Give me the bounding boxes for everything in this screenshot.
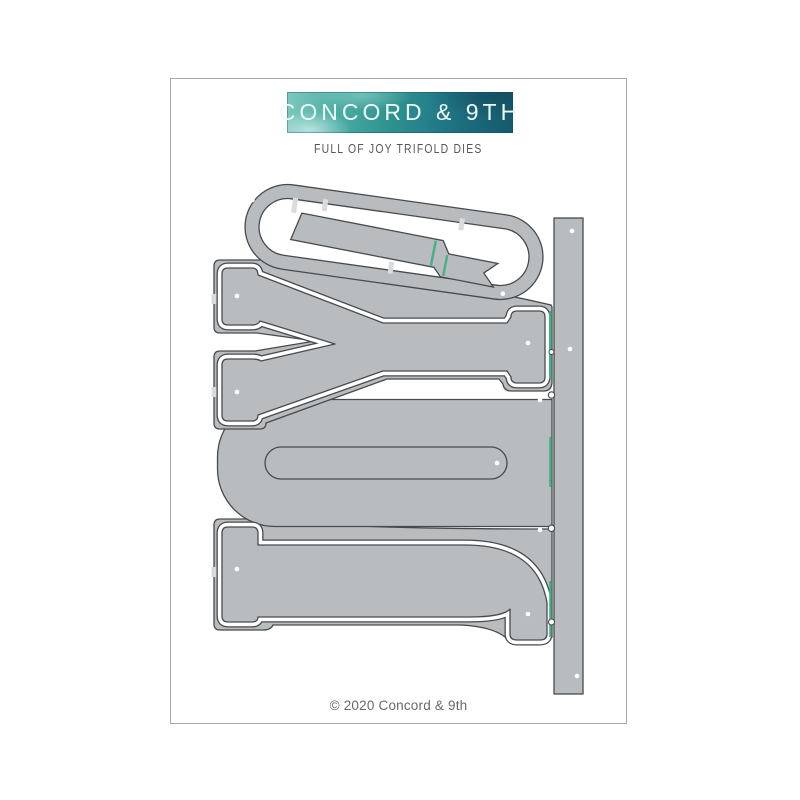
pin-hole xyxy=(235,294,240,299)
edge-notch xyxy=(548,392,554,398)
edge-notch xyxy=(549,619,555,625)
die-spine-strip xyxy=(554,218,583,694)
connector-tab xyxy=(212,294,217,304)
score-line xyxy=(549,581,551,637)
connector-tab xyxy=(212,387,217,397)
pin-hole xyxy=(538,528,543,533)
pin-hole xyxy=(235,390,240,395)
product-image-canvas: { "brand": { "name": "CONCORD & 9TH", "l… xyxy=(0,0,800,800)
connector-tab xyxy=(291,198,298,214)
footer: © 2020 Concord & 9th xyxy=(170,697,627,715)
pin-hole xyxy=(538,398,543,403)
die-joy-base-plate xyxy=(212,260,555,640)
score-line xyxy=(549,311,551,379)
pin-hole xyxy=(526,341,531,346)
die-layout-diagram xyxy=(0,0,800,800)
pin-hole xyxy=(526,612,531,617)
score-line xyxy=(549,437,551,487)
pin-hole xyxy=(235,567,240,572)
pin-hole xyxy=(575,674,580,679)
pin-hole xyxy=(568,347,573,352)
edge-notch xyxy=(548,525,554,531)
connector-tab xyxy=(212,567,217,577)
pin-hole xyxy=(570,229,575,234)
pin-hole xyxy=(495,461,500,466)
copyright-text: © 2020 Concord & 9th xyxy=(330,698,468,713)
pin-hole xyxy=(481,254,486,259)
edge-notch xyxy=(549,350,554,355)
